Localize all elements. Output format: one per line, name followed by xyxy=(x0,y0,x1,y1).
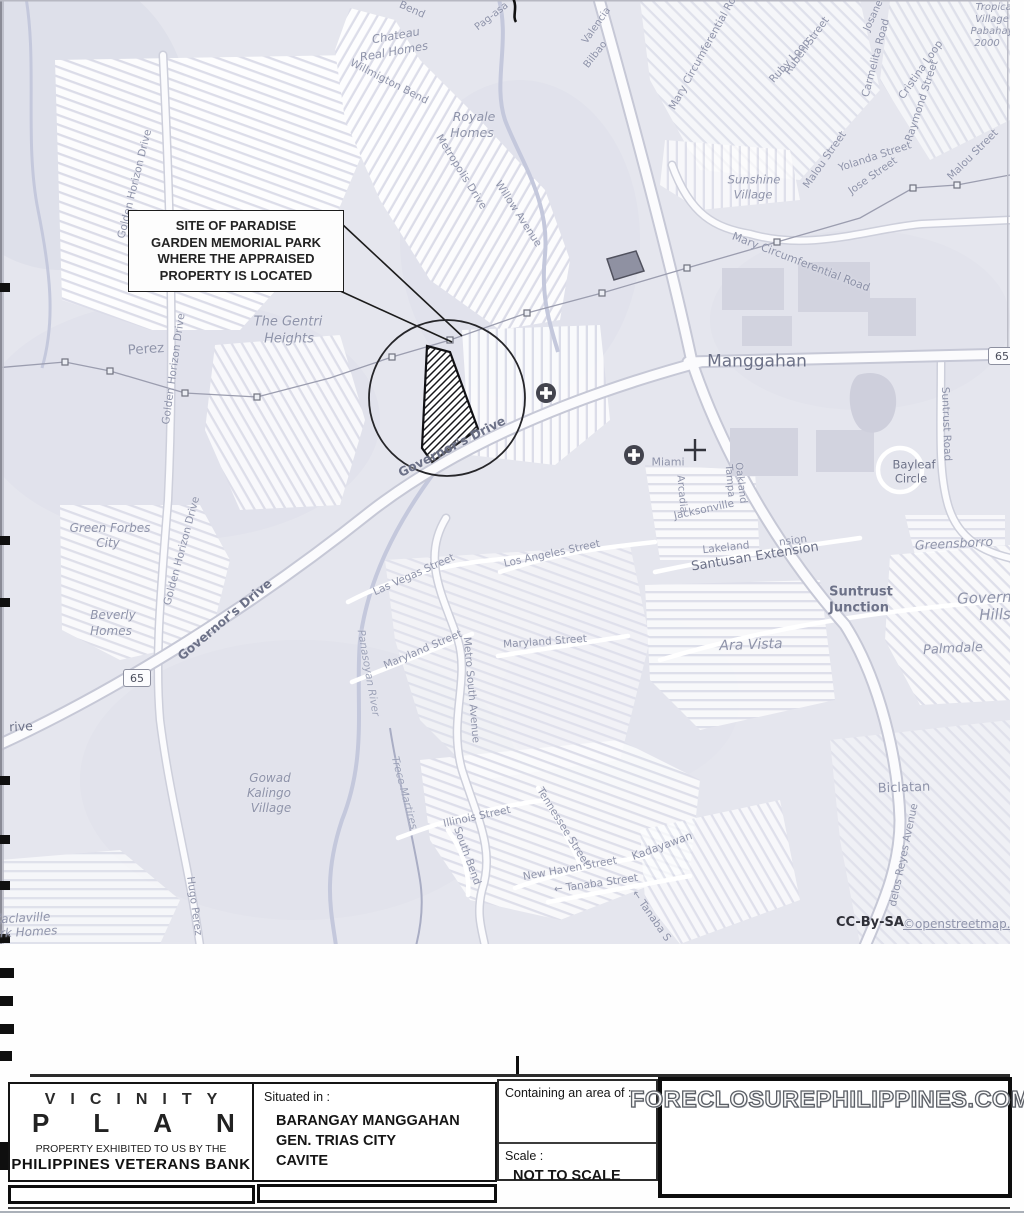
situated-province: CAVITE xyxy=(276,1151,495,1171)
map-label: ark Homes xyxy=(0,924,58,939)
situated-barangay: BARANGAY MANGGAHAN xyxy=(276,1111,495,1131)
route-shield: 65 xyxy=(123,669,151,687)
map-label: Royale xyxy=(453,111,496,124)
scan-tick xyxy=(0,968,14,978)
callout-line: WHERE THE APPRAISED xyxy=(129,251,343,268)
map-label: Junction xyxy=(829,602,889,615)
map-label: Ara Vista xyxy=(719,637,783,653)
bank-name: PHILIPPINES VETERANS BANK xyxy=(10,1156,252,1173)
site-callout: SITE OF PARADISE GARDEN MEMORIAL PARK WH… xyxy=(128,210,344,292)
map-label: Governor xyxy=(957,589,1010,606)
map-label: Tropical xyxy=(975,3,1010,13)
scan-tick xyxy=(0,1024,14,1034)
map-label: Pabahay xyxy=(970,27,1010,37)
vicinity-map: BendPag-asaValenciaBilbaoChateauReal Hom… xyxy=(0,0,1010,944)
map-label: Village xyxy=(734,189,773,201)
map-label: Suntrust Road xyxy=(939,387,952,462)
map-label: Sunshine xyxy=(728,174,781,186)
map-label: Kalingo xyxy=(247,787,291,799)
map-artwork xyxy=(0,0,1010,944)
scanned-vicinity-plan-page: BendPag-asaValenciaBilbaoChateauReal Hom… xyxy=(0,0,1024,1216)
map-label: Homes xyxy=(90,625,132,637)
situated-city: GEN. TRIAS CITY xyxy=(276,1131,495,1151)
callout-line: GARDEN MEMORIAL PARK xyxy=(129,235,343,252)
map-label: Palmdale xyxy=(923,641,984,657)
title-cell: VICINITY PLAN PROPERTY EXHIBITED TO US B… xyxy=(8,1082,254,1182)
callout-line: SITE OF PARADISE xyxy=(129,218,343,235)
map-label: Beverly xyxy=(90,609,135,621)
empty-box-left xyxy=(8,1185,255,1204)
area-label: Containing an area of : xyxy=(505,1086,631,1100)
scan-tick xyxy=(0,996,13,1006)
empty-box-middle xyxy=(257,1184,497,1203)
map-label: Homes xyxy=(450,127,493,140)
route-shield: 65 xyxy=(988,347,1010,365)
situated-cell: Situated in : BARANGAY MANGGAHAN GEN. TR… xyxy=(252,1082,497,1182)
map-label: Perez xyxy=(127,342,164,358)
watermark: FORECLOSUREPHILIPPINES.COM xyxy=(630,1086,1024,1113)
page-bottom-edge xyxy=(0,1211,1024,1213)
map-label: Hills xyxy=(979,607,1010,623)
map-label: Miami xyxy=(651,457,684,468)
cell-divider xyxy=(499,1142,656,1144)
scan-tick xyxy=(516,1056,519,1076)
callout-line: PROPERTY IS LOCATED xyxy=(129,268,343,285)
map-label: rive xyxy=(9,720,33,734)
map-label: Gowad xyxy=(249,772,290,784)
map-label: Suntrust xyxy=(829,586,893,599)
plan-title-line2: PLAN xyxy=(10,1110,252,1136)
map-label: Bayleaf xyxy=(892,459,935,471)
map-label: City xyxy=(96,537,120,549)
map-label: 2000 xyxy=(974,39,999,49)
situated-label: Situated in : xyxy=(254,1084,495,1104)
map-label: Village xyxy=(975,15,1009,25)
map-label: The Gentri xyxy=(254,316,323,329)
hospital-icon xyxy=(624,445,644,465)
map-label: Green Forbes xyxy=(70,522,151,534)
scale-value: NOT TO SCALE xyxy=(513,1168,621,1184)
scan-tick xyxy=(0,1051,12,1061)
map-attribution-link: ©openstreetmap.org xyxy=(903,917,1010,931)
map-attribution: CC-By-SA xyxy=(836,915,904,930)
scale-label: Scale : xyxy=(505,1149,543,1163)
map-label: Tampa xyxy=(723,464,736,498)
map-label: Heights xyxy=(264,333,314,346)
map-label: Village xyxy=(251,802,292,814)
map-label: Manggahan xyxy=(707,354,807,371)
exhibited-by-label: PROPERTY EXHIBITED TO US BY THE xyxy=(10,1143,252,1155)
title-block-bottom-rule xyxy=(8,1207,1010,1209)
plan-title-line1: VICINITY xyxy=(10,1091,252,1109)
map-label: Circle xyxy=(895,473,927,485)
hospital-icon xyxy=(536,383,556,403)
map-label: Biclatan xyxy=(878,781,931,796)
